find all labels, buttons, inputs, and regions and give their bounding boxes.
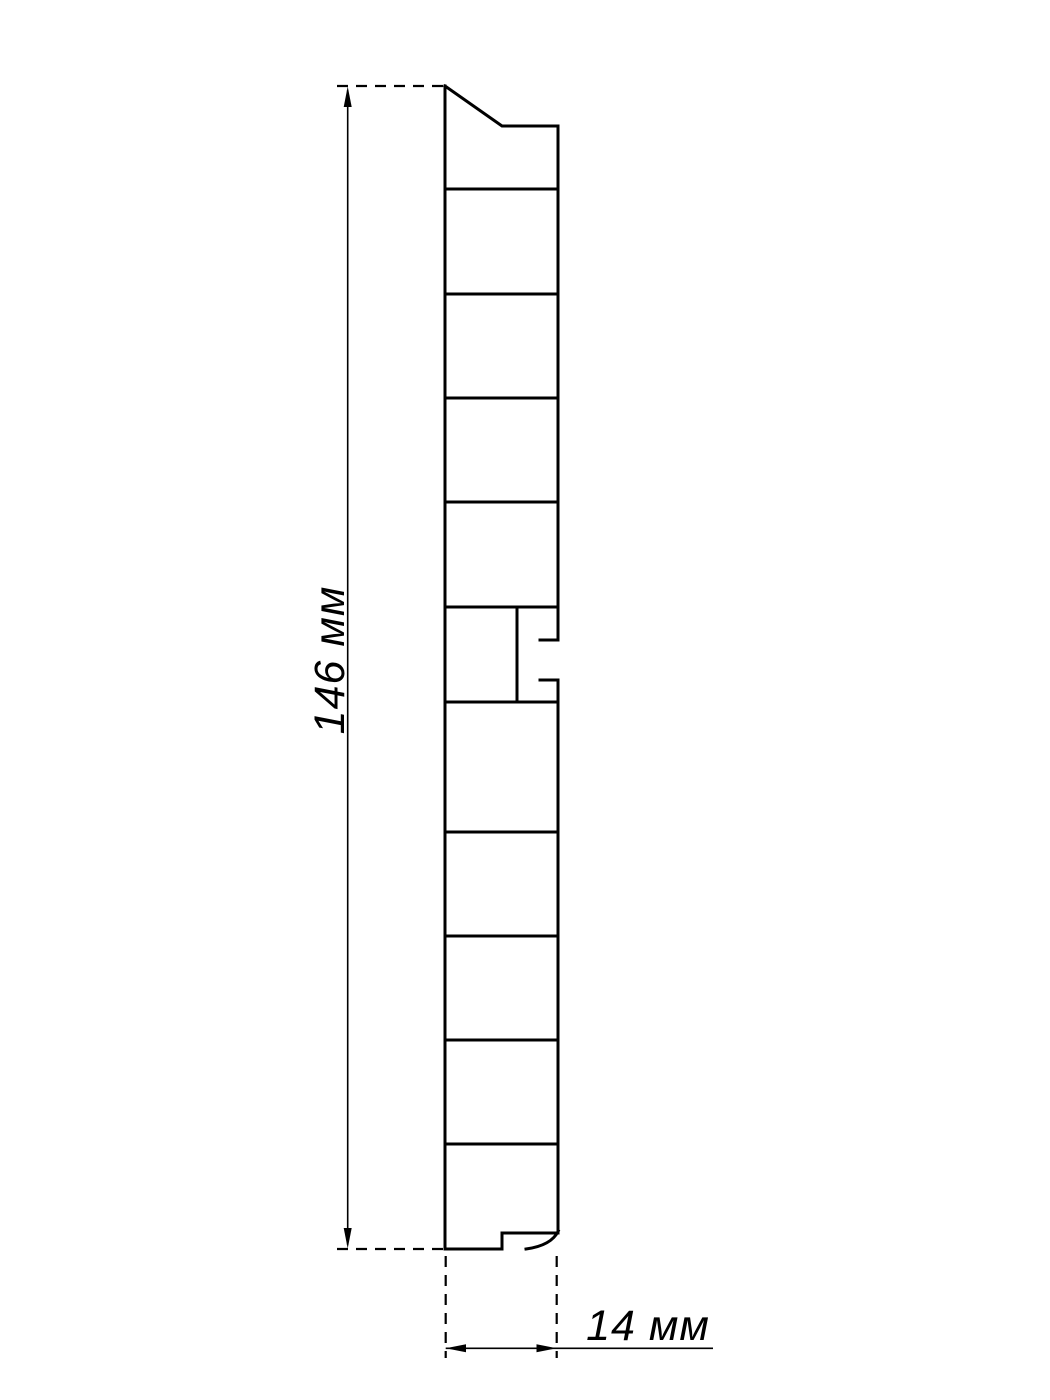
- height-dimension-label: 146 мм: [306, 586, 354, 735]
- profile-right-edge-lower: [540, 680, 558, 1233]
- arrow-down-icon: [344, 1228, 352, 1249]
- profile-top-chamfer: [445, 86, 558, 126]
- profile-drawing: 146 мм 14 мм: [0, 0, 1050, 1400]
- height-dimension: 146 мм: [306, 86, 445, 1249]
- plank-profile: [445, 86, 558, 1249]
- width-dimension: 14 мм: [446, 1256, 713, 1358]
- arrow-left-icon: [446, 1344, 466, 1352]
- arrow-right-icon: [537, 1344, 557, 1352]
- profile-right-edge-upper: [540, 126, 558, 640]
- division-lines: [445, 189, 558, 1144]
- width-dimension-label: 14 мм: [586, 1302, 710, 1350]
- drawing-canvas: 146 мм 14 мм: [0, 0, 1050, 1400]
- arrow-up-icon: [344, 87, 352, 108]
